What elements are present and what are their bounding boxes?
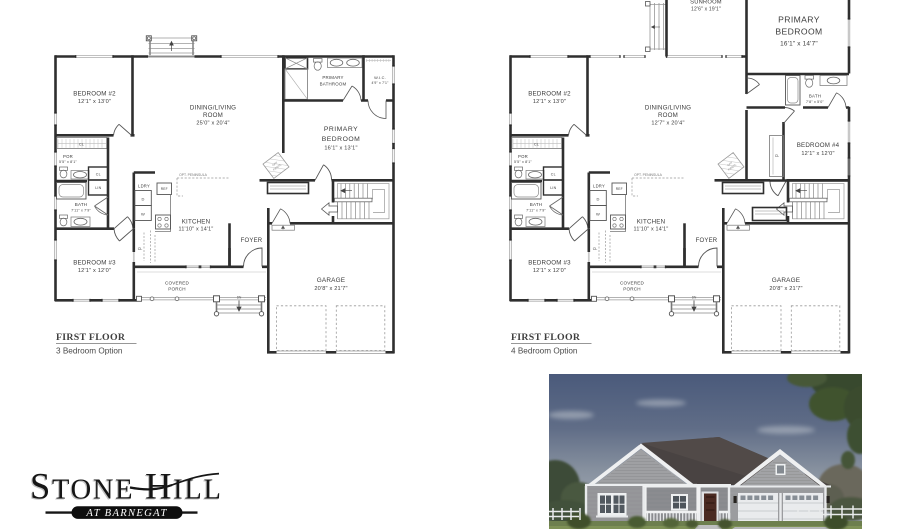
svg-text:POR: POR [518,154,528,159]
svg-text:PRIMARY: PRIMARY [778,15,820,25]
svg-text:POR: POR [63,154,73,159]
svg-text:DN: DN [237,296,242,300]
svg-text:12'1" x 13'0": 12'1" x 13'0" [533,99,566,105]
svg-text:11'10" x 14'1": 11'10" x 14'1" [179,227,214,233]
svg-text:12'1" x 12'0": 12'1" x 12'0" [533,268,566,274]
svg-text:CL: CL [534,142,539,146]
svg-text:FIRST FLOOR: FIRST FLOOR [56,332,126,343]
svg-text:BATH: BATH [530,202,542,207]
svg-text:BEDROOM #2: BEDROOM #2 [528,91,571,98]
svg-text:BEDROOM: BEDROOM [322,136,361,143]
svg-text:D: D [596,197,599,202]
svg-text:20'8" x 21'7": 20'8" x 21'7" [769,286,802,292]
svg-text:CL: CL [96,173,101,177]
svg-text:W: W [141,211,145,216]
svg-text:ROOM: ROOM [203,112,223,119]
svg-text:12'7" x 20'4": 12'7" x 20'4" [651,121,684,127]
svg-text:OPT. PENINSULA: OPT. PENINSULA [634,173,662,177]
svg-text:12'6" x 19'1": 12'6" x 19'1" [691,7,721,13]
svg-text:BEDROOM #2: BEDROOM #2 [73,91,116,98]
svg-text:COVERED: COVERED [620,281,645,286]
svg-text:BEDROOM #4: BEDROOM #4 [797,142,840,149]
svg-text:4'9" x 7'1": 4'9" x 7'1" [371,81,389,85]
svg-text:CL: CL [593,247,598,251]
svg-text:DN: DN [692,296,697,300]
svg-text:KITCHEN: KITCHEN [637,219,666,226]
svg-text:BATHROOM: BATHROOM [320,82,347,87]
svg-text:PORCH: PORCH [623,286,641,291]
svg-text:11'10" x 14'1": 11'10" x 14'1" [634,227,669,233]
svg-text:CL: CL [551,173,556,177]
svg-text:7'8" x 5'0": 7'8" x 5'0" [806,100,824,104]
svg-text:OPT. PENINSULA: OPT. PENINSULA [179,173,207,177]
svg-text:25'0" x 20'4": 25'0" x 20'4" [196,121,229,127]
svg-text:REF: REF [616,187,623,191]
svg-text:REF: REF [161,187,168,191]
svg-text:4 Bedroom Option: 4 Bedroom Option [511,347,578,356]
svg-text:LIN: LIN [95,186,101,190]
svg-text:12'1" x 13'0": 12'1" x 13'0" [78,99,111,105]
svg-text:20'8" x 21'7": 20'8" x 21'7" [314,286,347,292]
svg-text:FOYER: FOYER [241,238,263,244]
svg-text:16'1" x 13'1": 16'1" x 13'1" [324,146,357,152]
svg-text:BATH: BATH [75,202,87,207]
svg-text:DINING/LIVING: DINING/LIVING [190,105,236,112]
svg-text:LIN: LIN [550,186,556,190]
svg-text:12'1" x 12'0": 12'1" x 12'0" [801,151,834,157]
svg-text:CL: CL [775,154,779,158]
svg-text:W: W [596,211,600,216]
svg-text:AT BARNEGAT: AT BARNEGAT [85,508,167,519]
svg-text:5'5" x 8'1": 5'5" x 8'1" [514,160,532,164]
svg-text:GARAGE: GARAGE [772,277,801,284]
svg-text:BEDROOM: BEDROOM [775,27,822,37]
svg-text:SUNROOM: SUNROOM [690,0,722,6]
svg-text:DINING/LIVING: DINING/LIVING [645,105,691,112]
svg-text:PORCH: PORCH [168,286,186,291]
svg-text:BATH: BATH [809,94,821,99]
svg-text:CL: CL [79,142,84,146]
svg-text:CL: CL [138,247,143,251]
svg-text:BEDROOM #3: BEDROOM #3 [73,260,116,267]
svg-text:FOYER: FOYER [696,238,718,244]
svg-text:ROOM: ROOM [658,112,678,119]
svg-text:COVERED: COVERED [165,281,190,286]
svg-text:FIRST FLOOR: FIRST FLOOR [511,332,581,343]
svg-text:3 Bedroom Option: 3 Bedroom Option [56,347,123,356]
svg-text:W.I.C.: W.I.C. [374,75,386,80]
svg-text:KITCHEN: KITCHEN [182,219,211,226]
svg-text:7'11" x 7'9": 7'11" x 7'9" [526,208,546,212]
svg-text:16'1" x 14'7": 16'1" x 14'7" [780,41,818,48]
svg-text:LDRY: LDRY [138,183,150,188]
svg-text:5'5" x 8'1": 5'5" x 8'1" [59,160,77,164]
svg-text:D: D [141,197,144,202]
svg-text:7'11" x 7'9": 7'11" x 7'9" [71,208,91,212]
svg-text:PRIMARY: PRIMARY [322,75,343,80]
svg-text:PRIMARY: PRIMARY [324,126,358,133]
svg-text:BEDROOM #3: BEDROOM #3 [528,260,571,267]
svg-text:12'1" x 12'0": 12'1" x 12'0" [78,268,111,274]
svg-text:GARAGE: GARAGE [317,277,346,284]
svg-text:LDRY: LDRY [593,183,605,188]
